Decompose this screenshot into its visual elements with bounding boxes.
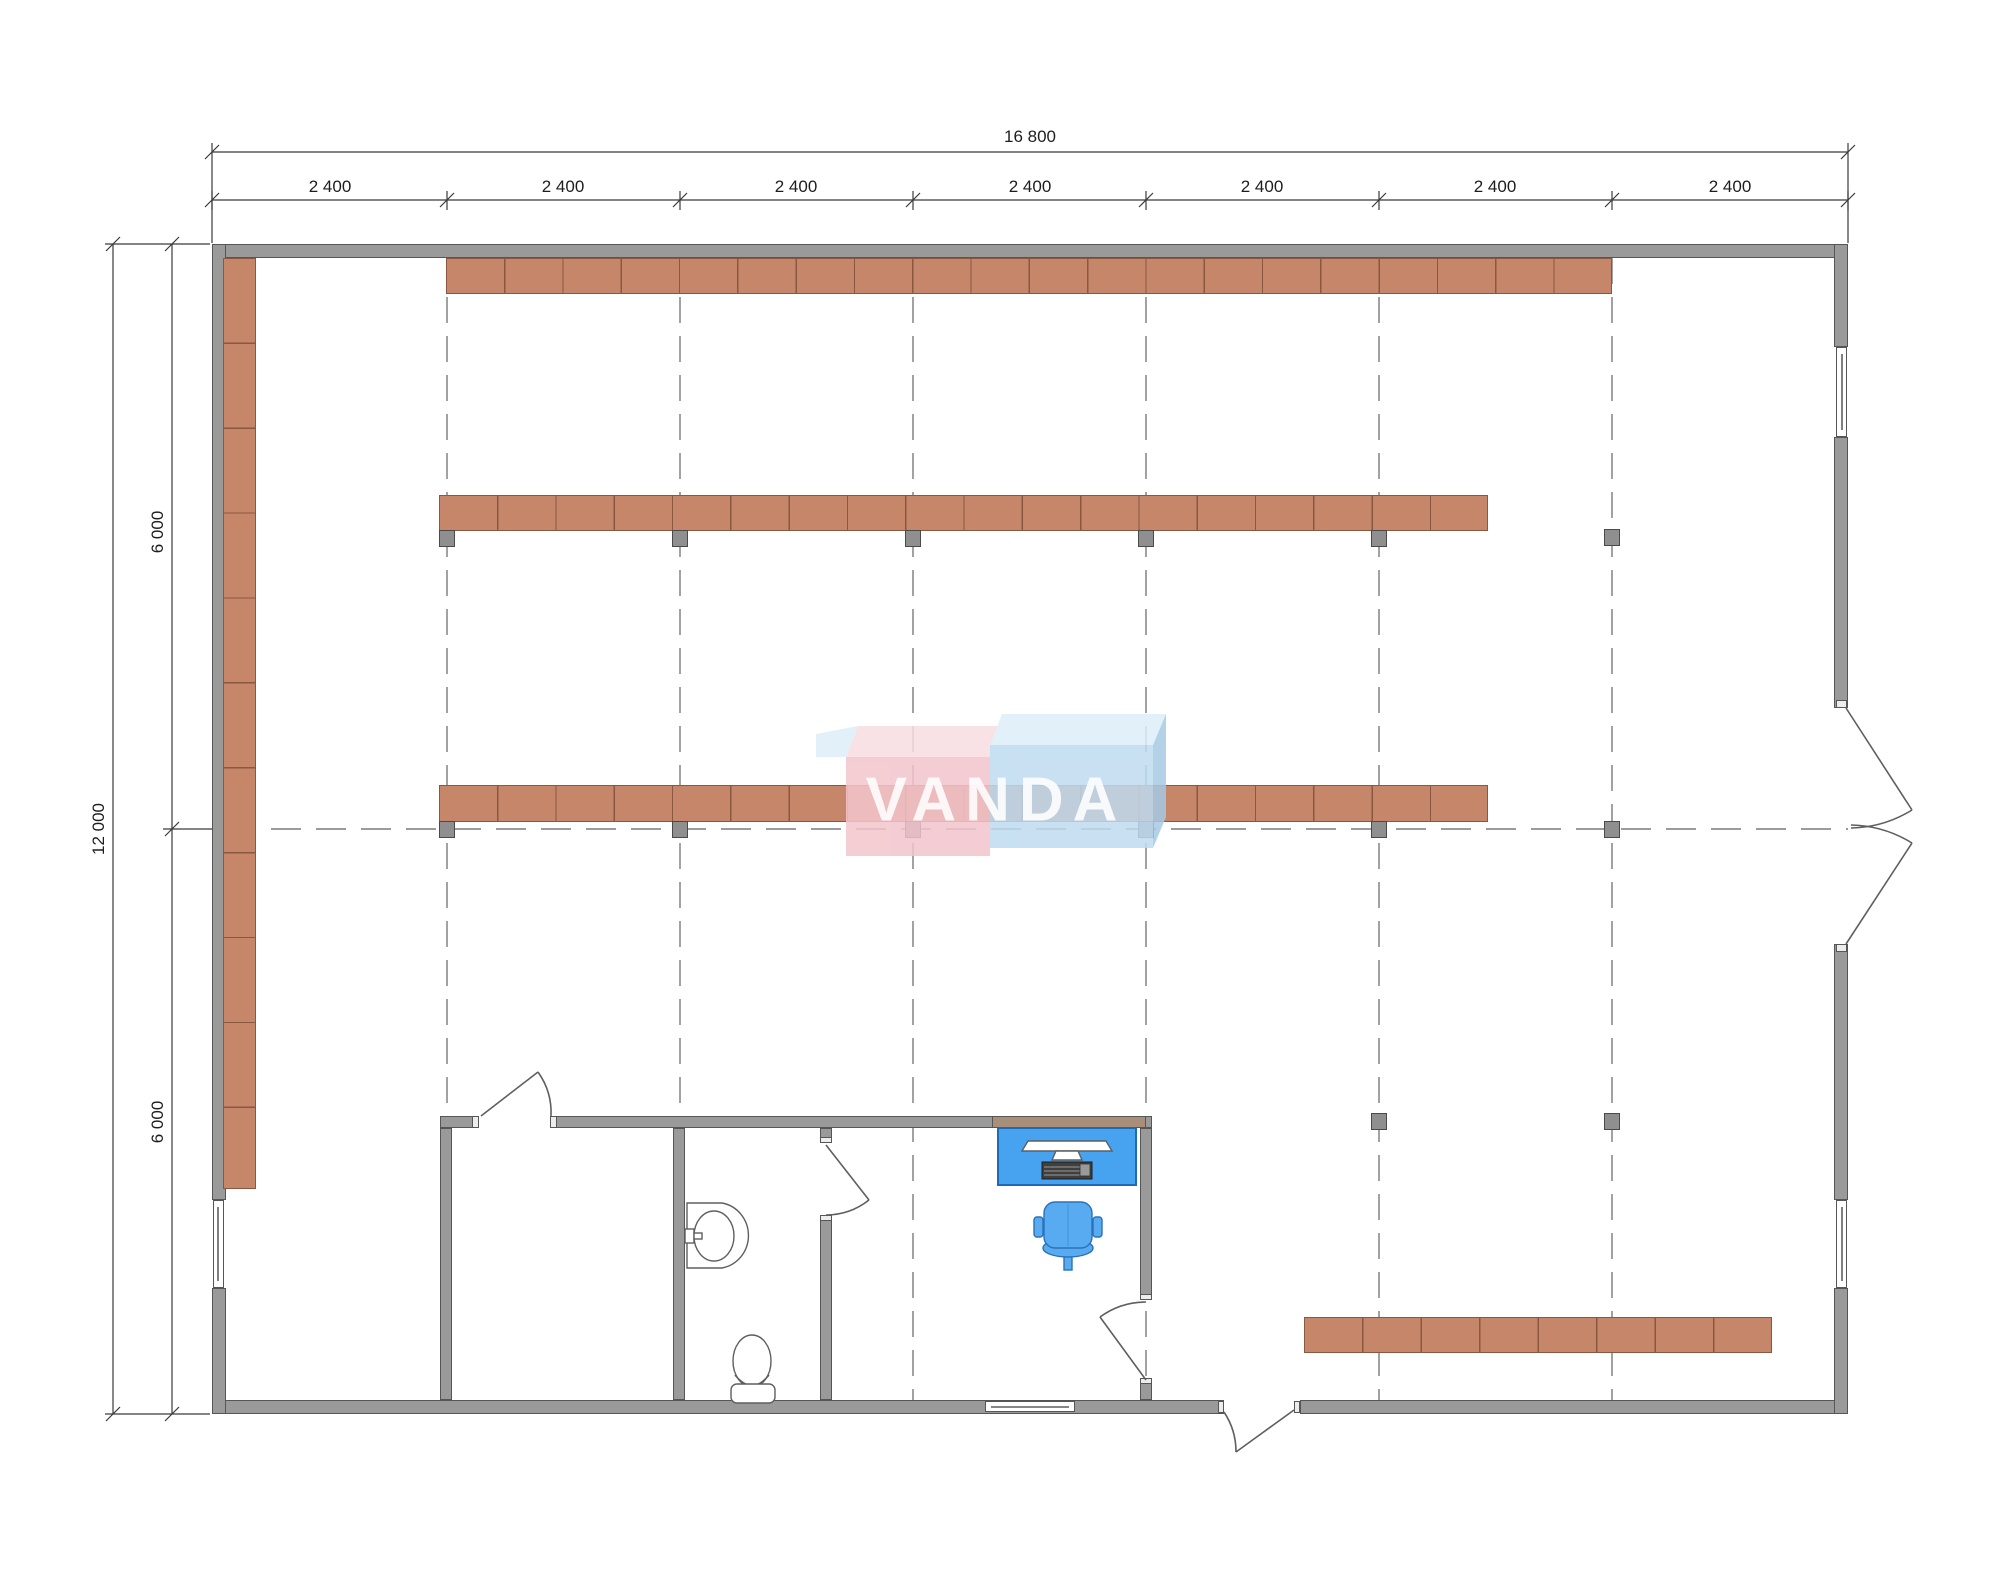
dim-label-top-segment: 2 400 [309,177,352,197]
vanda-logo: VANDA [816,706,1176,856]
door-office [1100,1302,1146,1380]
dim-label-top-segment: 2 400 [775,177,818,197]
door-room1 [481,1072,551,1116]
dim-label-left-segment: 6 000 [148,1101,168,1144]
floor-plan: VANDA 16 800 2 400 2 400 2 400 2 400 2 4… [0,0,2000,1574]
dim-label-top-segment: 2 400 [1709,177,1752,197]
computer-monitor [1022,1141,1112,1160]
door-exterior-bottom [1224,1410,1294,1452]
dim-label-top-segment: 2 400 [1241,177,1284,197]
dim-label-top-total: 16 800 [1004,127,1056,147]
computer-keyboard [1042,1162,1092,1179]
vanda-logo-text: VANDA [866,765,1127,836]
dim-label-top-segment: 2 400 [1009,177,1052,197]
office-chair [1034,1202,1102,1270]
door-wc [826,1145,869,1215]
sink [685,1203,748,1268]
window-glazing [218,354,1842,1407]
door-exterior-right-double [1846,708,1912,944]
toilet [731,1335,775,1403]
dim-label-left-total: 12 000 [89,803,109,855]
dim-label-top-segment: 2 400 [542,177,585,197]
dim-label-top-segment: 2 400 [1474,177,1517,197]
dim-label-left-segment: 6 000 [148,511,168,554]
